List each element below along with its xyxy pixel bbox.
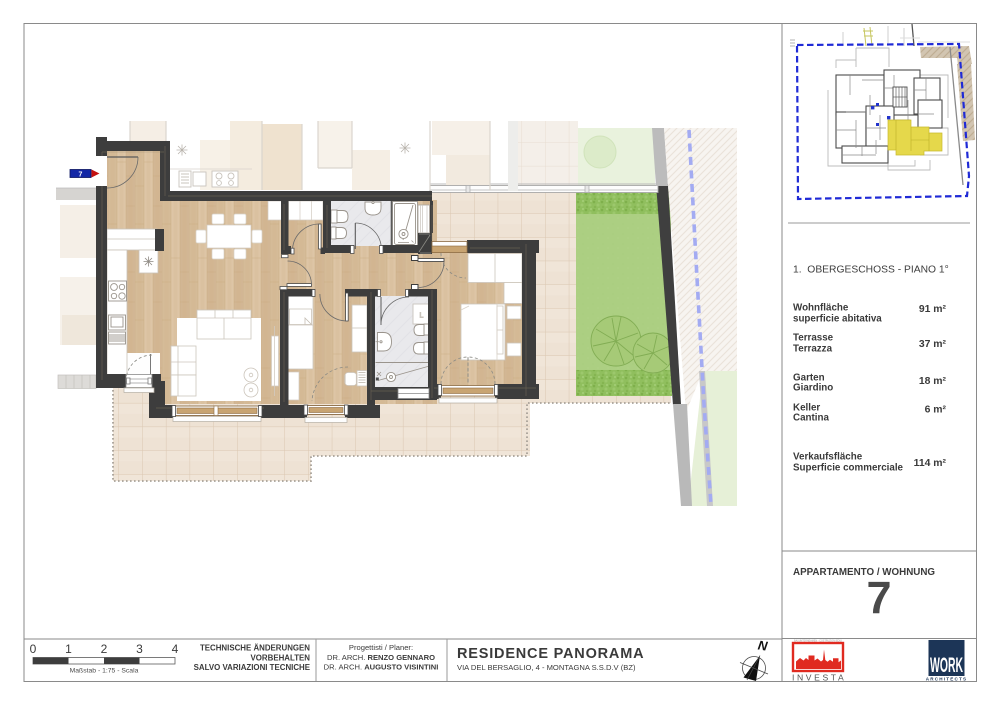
svg-text:7: 7 [79,172,83,179]
svg-text:6 m²: 6 m² [925,405,947,416]
svg-text:superficie abitativa: superficie abitativa [793,314,882,325]
svg-text:Progettisti / Planer:: Progettisti / Planer: [349,643,413,652]
svg-text:Terrazza: Terrazza [793,344,833,355]
svg-text:4: 4 [172,642,179,656]
svg-text:Giardino: Giardino [793,383,833,394]
svg-text:ARCHITECTS: ARCHITECTS [926,677,968,682]
svg-text:91 m²: 91 m² [919,304,947,315]
svg-text:Maßstab - 1:75 - Scala: Maßstab - 1:75 - Scala [70,668,139,675]
svg-text:2: 2 [101,642,108,656]
svg-text:VORBEHALTEN: VORBEHALTEN [251,654,311,663]
svg-text:VIA DEL BERSAGLIO, 4 - MONTAGN: VIA DEL BERSAGLIO, 4 - MONTAGNA S.S.D.V … [457,663,636,672]
svg-text:L: L [420,313,424,320]
svg-text:114 m²: 114 m² [914,458,947,469]
svg-text:18 m²: 18 m² [919,376,947,387]
svg-text:1: 1 [65,642,72,656]
svg-text:0: 0 [30,642,37,656]
svg-text:RESIDENCE PANORAMA: RESIDENCE PANORAMA [457,646,644,662]
svg-text:DR. ARCH. AUGUSTO VISINTINI: DR. ARCH. AUGUSTO VISINTINI [324,663,439,672]
svg-text:Superficie commerciale: Superficie commerciale [793,463,904,474]
svg-text:SALVO VARIAZIONI TECNICHE: SALVO VARIAZIONI TECNICHE [194,663,310,672]
svg-text:1. OBERGESCHOSS - PIANO 1°: 1. OBERGESCHOSS - PIANO 1° [793,265,949,276]
svg-text:DR. ARCH. RENZO GENNARO: DR. ARCH. RENZO GENNARO [327,653,435,662]
svg-text:WORK: WORK [930,654,963,677]
svg-text:Cantina: Cantina [793,413,829,424]
svg-text:TECHNISCHE ÄNDERUNGEN: TECHNISCHE ÄNDERUNGEN [200,644,310,653]
svg-text:Terrasse: Terrasse [793,333,834,344]
svg-text:Wohnfläche: Wohnfläche [793,303,849,314]
svg-text:3: 3 [136,642,143,656]
svg-text:37 m²: 37 m² [919,339,947,350]
svg-text:7: 7 [866,572,891,623]
svg-text:APPARTAMENTO / WOHNUNG: APPARTAMENTO / WOHNUNG [793,567,935,578]
svg-text:Verkaufsfläche: Verkaufsfläche [793,452,863,463]
